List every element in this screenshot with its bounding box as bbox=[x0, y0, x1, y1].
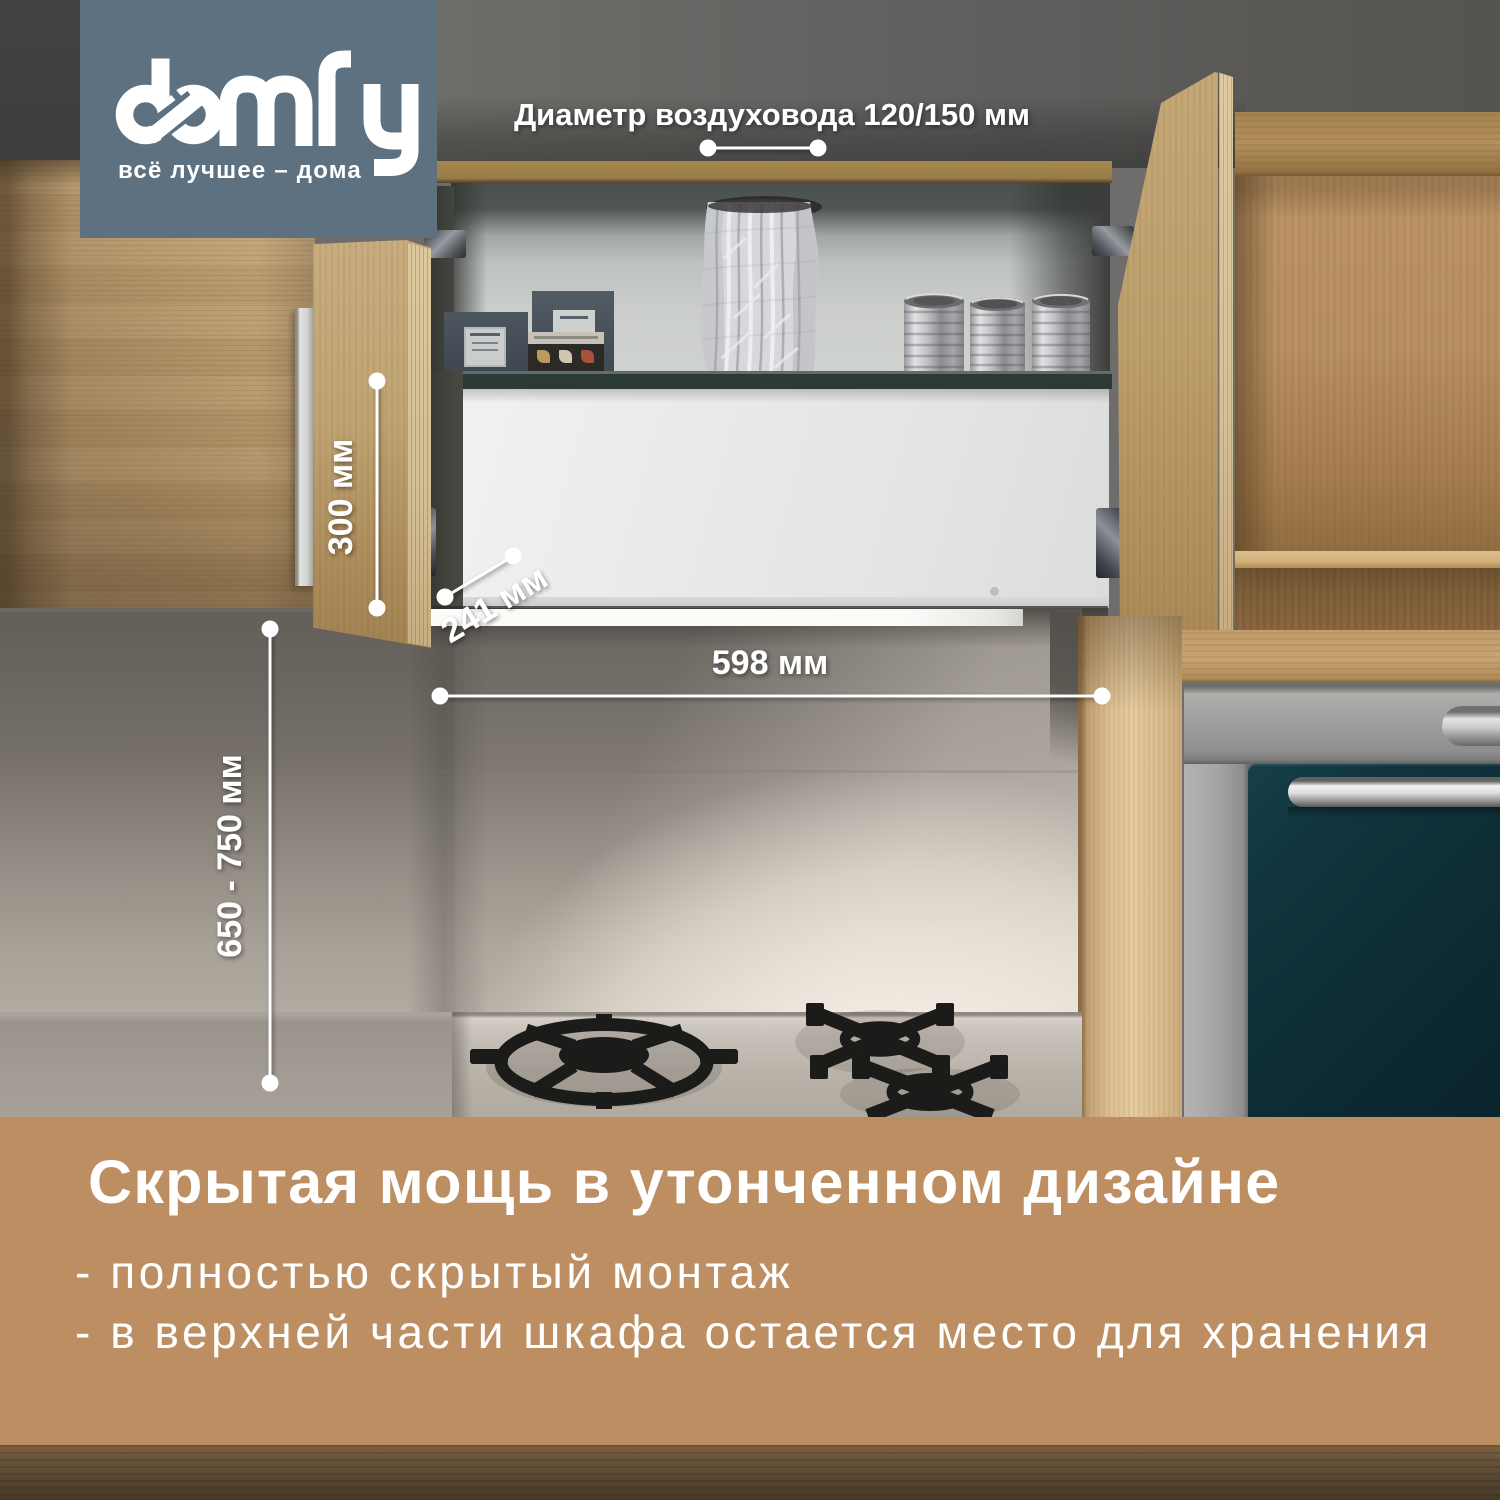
svg-text:Диаметр воздуховода 120/150 мм: Диаметр воздуховода 120/150 мм bbox=[514, 97, 1030, 132]
svg-text:650 - 750 мм: 650 - 750 мм bbox=[211, 754, 249, 957]
svg-text:241 мм: 241 мм bbox=[435, 558, 554, 651]
svg-text:300 мм: 300 мм bbox=[322, 439, 360, 555]
svg-text:598 мм: 598 мм bbox=[712, 644, 828, 682]
